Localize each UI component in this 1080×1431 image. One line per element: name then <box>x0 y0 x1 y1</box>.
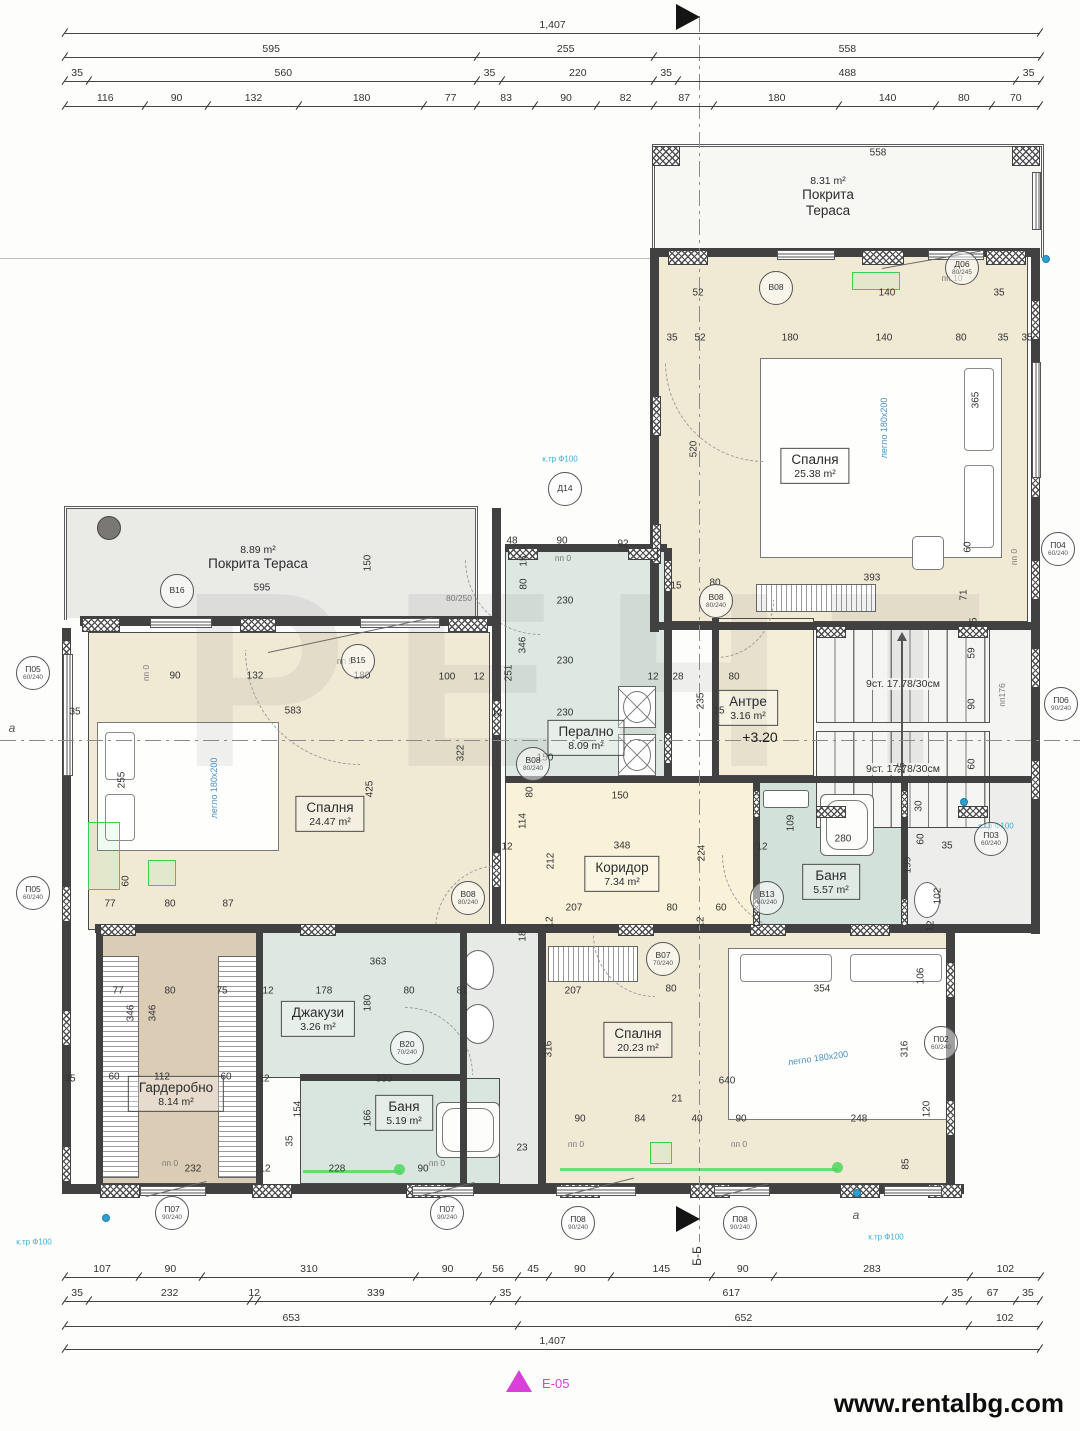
dimension-label: 100 <box>439 672 456 683</box>
dimension-value: 595 <box>262 43 280 55</box>
dimension-line <box>65 106 145 107</box>
room-label-bedroom-w: Спалня24.47 m² <box>295 796 364 832</box>
wall-hatch <box>668 250 708 265</box>
dimension-label: +3.20 <box>742 729 777 745</box>
dimension-line <box>89 81 477 82</box>
dimension-label: пп 0 <box>568 1139 584 1149</box>
dimension-label: 12 <box>696 916 707 927</box>
room-area: 7.34 m² <box>595 876 648 888</box>
callout-size: 80/245 <box>952 269 972 276</box>
dimension-line <box>654 106 714 107</box>
dimension-label: 90 <box>735 1114 746 1125</box>
dimension-label: 230 <box>557 708 574 719</box>
dimension-value: 283 <box>863 1263 881 1275</box>
dimension-line <box>493 1301 517 1302</box>
dimension-label: 199 <box>903 857 914 874</box>
wall <box>460 930 467 1184</box>
wall-hatch <box>753 790 760 818</box>
dimension-line <box>424 106 477 107</box>
dimension-value: 1,407 <box>539 1335 565 1347</box>
dimension-label: 90 <box>417 1164 428 1175</box>
callout-size: 80/240 <box>706 602 726 609</box>
callout-В07: В0770/240 <box>646 942 680 976</box>
dimension-line <box>839 106 936 107</box>
bathtub <box>820 794 874 856</box>
dimension-label: 280 <box>835 834 852 845</box>
dimension-value: 1,407 <box>539 19 565 31</box>
dimension-value: 220 <box>569 67 587 79</box>
nightstand <box>912 536 944 570</box>
dimension-value: 35 <box>951 1287 963 1299</box>
callout-id: Д06 <box>954 260 969 269</box>
dimension-label: 106 <box>916 968 927 985</box>
drain-marker <box>960 798 968 806</box>
dimension-label: 640 <box>719 1076 736 1087</box>
wall-hatch <box>618 924 654 936</box>
dimension-line <box>145 106 207 107</box>
room-area: 25.38 m² <box>791 468 838 480</box>
sheet-marker-triangle-icon <box>506 1370 532 1392</box>
dimension-label: 80/250 <box>446 593 472 603</box>
dimension-label: 154 <box>293 1101 304 1118</box>
dimension-label: 81 <box>456 986 467 997</box>
wall-hatch <box>492 852 501 888</box>
pipe-label: к.тр Ф100 <box>16 1238 52 1247</box>
dimension-label: 140 <box>876 333 893 344</box>
section-label: Б-Б <box>690 1246 704 1266</box>
dimension-value: 339 <box>367 1287 385 1299</box>
dimension-label: 150 <box>612 791 629 802</box>
wall <box>256 930 263 1184</box>
dimension-label: 80 <box>665 984 676 995</box>
drain-marker <box>853 1189 861 1197</box>
dimension-label: 228 <box>329 1164 346 1175</box>
dimension-line <box>714 106 839 107</box>
room-label-terrace-ne: 8.31 m²ПокритаТераса <box>802 175 854 219</box>
dimension-label: 583 <box>285 706 302 717</box>
dimension-line <box>1016 1301 1040 1302</box>
floor-plan: Е-05 www.rentalbg.com 8.31 m²ПокритаТера… <box>0 0 1080 1431</box>
dimension-label: пп 0 <box>141 665 151 681</box>
dimension-label: 166 <box>363 1110 374 1127</box>
dimension-line <box>518 1326 970 1327</box>
dimension-label: 230 <box>557 656 574 667</box>
dimension-value: 145 <box>653 1263 671 1275</box>
dimension-line <box>611 1277 711 1278</box>
dimension-label: 520 <box>689 441 700 458</box>
dimension-value: 488 <box>839 67 857 79</box>
callout-id: В16 <box>169 586 184 595</box>
bed-size-label: легло 180x200 <box>209 758 219 819</box>
callout-id: В08 <box>768 283 783 292</box>
guide-line <box>0 258 656 259</box>
dimension-label: 224 <box>697 845 708 862</box>
dimension-label: 393 <box>864 573 881 584</box>
dimension-label: 25 <box>969 617 980 628</box>
dimension-label: 354 <box>814 984 831 995</box>
dimension-label: 207 <box>566 903 583 914</box>
dimension-value: 140 <box>879 92 897 104</box>
callout-В08: В0880/240 <box>699 584 733 618</box>
dimension-value: 35 <box>71 67 83 79</box>
dimension-value: 56 <box>492 1263 504 1275</box>
dimension-value: 35 <box>484 67 496 79</box>
dimension-label: 15 <box>713 706 724 717</box>
dimension-line <box>299 106 424 107</box>
dimension-line <box>992 106 1041 107</box>
dimension-label: 112 <box>154 1072 170 1083</box>
callout-Д06: Д0680/245 <box>945 251 979 285</box>
dimension-label: 35 <box>64 1074 75 1085</box>
dimension-label: 12 <box>258 1074 269 1085</box>
dimension-label: 12 <box>473 672 484 683</box>
wall-hatch <box>448 618 488 632</box>
dimension-label: 40 <box>691 1114 702 1125</box>
room-name: Спалня <box>614 1026 661 1042</box>
dimension-line <box>65 57 477 58</box>
dimension-label: 12 <box>491 708 502 719</box>
callout-id: В20 <box>399 1040 414 1049</box>
dimension-value: 102 <box>996 1312 1014 1324</box>
dimension-line <box>549 1277 611 1278</box>
callout-size: 70/240 <box>397 1049 417 1056</box>
wall-hatch <box>240 618 276 632</box>
dimension-value: 35 <box>660 67 672 79</box>
dimension-value: 77 <box>445 92 457 104</box>
dimension-line <box>502 81 654 82</box>
callout-size: 60/240 <box>23 894 43 901</box>
dimension-label: 339 <box>376 1074 393 1085</box>
dimension-label: 316 <box>900 1041 911 1058</box>
wall-hatch <box>664 732 672 764</box>
callout-П04: П0460/240 <box>1041 532 1075 566</box>
bathroom-sink <box>763 790 809 808</box>
dimension-value: 310 <box>300 1263 318 1275</box>
dimension-label: 60 <box>963 541 974 552</box>
dimension-label: 322 <box>456 745 467 762</box>
dimension-label: 30 <box>914 800 925 811</box>
room-name: Коридор <box>595 860 648 876</box>
dimension-label: 35 <box>1021 333 1032 344</box>
dimension-value: 82 <box>620 92 632 104</box>
callout-В20: В2070/240 <box>390 1031 424 1065</box>
callout-В16: В16 <box>160 574 194 608</box>
website-watermark: www.rentalbg.com <box>834 1388 1064 1419</box>
dimension-label: 316 <box>544 1041 555 1058</box>
dimension-tick <box>1037 1344 1044 1353</box>
dimension-value: 180 <box>768 92 786 104</box>
room-label-antre: Антре3.16 m² <box>718 690 778 726</box>
callout-id: В08 <box>708 593 723 602</box>
dimension-line <box>535 106 597 107</box>
dimension-label: 140 <box>879 288 896 299</box>
wall-hatch <box>1031 560 1040 600</box>
dimension-label: 28 <box>672 672 683 683</box>
callout-П08: П0890/240 <box>561 1206 595 1240</box>
dimension-label: 92 <box>617 539 628 550</box>
dimension-value: 116 <box>97 92 114 104</box>
room-label-jacuzzi: Джакузи3.26 m² <box>281 1001 355 1037</box>
dimension-label: пп 0 <box>162 1158 178 1168</box>
dimension-label: 348 <box>614 841 631 852</box>
dimension-line <box>477 57 654 58</box>
callout-id: П03 <box>983 831 999 840</box>
radiator <box>148 860 176 886</box>
dimension-label: 75 <box>216 986 227 997</box>
bed-pillow <box>964 465 994 548</box>
room-name: Покрита <box>802 187 854 203</box>
room-area: 3.16 m² <box>729 710 767 722</box>
wall-hatch <box>652 396 661 436</box>
dimension-label: 77 <box>104 899 115 910</box>
stair-landing <box>816 722 990 732</box>
dimension-line <box>1016 81 1040 82</box>
callout-П02: П0260/240 <box>924 1026 958 1060</box>
dimension-label: 132 <box>247 671 264 682</box>
window <box>1032 172 1041 230</box>
callout-size: 60/240 <box>931 1044 951 1051</box>
dimension-value: 35 <box>500 1287 512 1299</box>
dimension-label: 80 <box>728 672 739 683</box>
callout-П06: П0690/240 <box>1044 687 1078 721</box>
dimension-label: 80 <box>666 903 677 914</box>
callout-П05: П0560/240 <box>16 656 50 690</box>
dimension-label: 207 <box>565 986 582 997</box>
dimension-label: 90 <box>967 698 978 709</box>
dimension-value: 80 <box>958 92 970 104</box>
wall-hatch <box>1012 146 1040 166</box>
wall-hatch <box>82 618 120 632</box>
callout-size: 90/240 <box>568 1224 588 1231</box>
wall <box>96 930 103 1184</box>
pipe-label: к.тр Ф100 <box>542 455 578 464</box>
wall-hatch <box>100 1184 140 1198</box>
dimension-label: 60 <box>121 875 132 886</box>
dimension-line <box>518 1301 946 1302</box>
radiator <box>88 822 120 890</box>
callout-id: В15 <box>350 656 365 665</box>
dimension-value: 45 <box>527 1263 539 1275</box>
dimension-label: 248 <box>851 1114 868 1125</box>
dimension-line <box>65 81 89 82</box>
dimension-label: 109 <box>786 815 797 832</box>
bed-pillow <box>964 368 994 451</box>
wall <box>946 924 1040 933</box>
dimension-value: 132 <box>245 92 263 104</box>
dimension-value: 70 <box>1010 92 1022 104</box>
dimension-tick <box>1037 28 1044 37</box>
dimension-value: 90 <box>737 1263 749 1275</box>
wall-hatch <box>958 806 988 818</box>
dimension-label: 80 <box>164 899 175 910</box>
dimension-label: 80 <box>403 986 414 997</box>
wall-hatch <box>862 250 904 265</box>
callout-id: В08 <box>525 756 540 765</box>
room-label-terrace-w: 8.89 m²Пок­рита Тераса <box>208 544 308 572</box>
dimension-line <box>202 1277 417 1278</box>
dimension-tick <box>1037 1296 1044 1305</box>
wall-hatch <box>901 790 908 818</box>
dimension-label: 120 <box>922 1101 933 1118</box>
dimension-label: 178 <box>316 986 333 997</box>
dimension-value: 232 <box>161 1287 179 1299</box>
sheet-label: Е-05 <box>542 1376 569 1391</box>
callout-size: 70/240 <box>653 960 673 967</box>
room-label-bath-e: Баня5.57 m² <box>802 864 860 900</box>
dimension-label: 346 <box>148 1005 159 1022</box>
dimension-line <box>970 1277 1041 1278</box>
dimension-label: 59 <box>967 647 978 658</box>
room-area: 5.19 m² <box>386 1115 422 1127</box>
callout-size: 90/240 <box>730 1224 750 1231</box>
dimension-value: 90 <box>164 1263 176 1275</box>
room-name: Пок­рита Тераса <box>208 556 308 572</box>
dimension-line <box>518 1277 549 1278</box>
dimension-value: 102 <box>997 1263 1015 1275</box>
wall-hatch <box>816 806 846 818</box>
bed-pillow <box>850 954 942 982</box>
dimension-label: 363 <box>370 957 387 968</box>
callout-id: В07 <box>655 951 670 960</box>
room-name: Гардеробно <box>139 1080 213 1096</box>
dimension-label: 558 <box>870 148 887 159</box>
dimension-value: 35 <box>71 1287 83 1299</box>
dimension-value: 67 <box>987 1287 999 1299</box>
dimension-line <box>969 1301 1015 1302</box>
dimension-label: 35 <box>941 841 952 852</box>
room-label-bedroom-s: Спалня20.23 m² <box>603 1022 672 1058</box>
dimension-label: 60 <box>220 1072 231 1083</box>
dimension-label: 52 <box>694 333 705 344</box>
callout-В13: В1380/240 <box>750 881 784 915</box>
dimension-value: 90 <box>442 1263 454 1275</box>
dimension-label: 85 <box>901 1158 912 1169</box>
green-marker <box>394 1164 405 1175</box>
dimension-line <box>477 81 501 82</box>
callout-id: П07 <box>164 1205 180 1214</box>
dimension-label: пп 0 <box>429 1158 445 1168</box>
dimension-label: пп 0 <box>555 553 571 563</box>
dimension-line <box>712 1277 774 1278</box>
wall-hatch <box>62 1146 71 1182</box>
callout-size: 90/240 <box>162 1214 182 1221</box>
dimension-label: 21 <box>671 1094 682 1105</box>
room-area: 3.26 m² <box>292 1021 344 1033</box>
wall-hatch <box>100 924 136 936</box>
dimension-label: 80 <box>164 986 175 997</box>
room-name: Джакузи <box>292 1005 344 1021</box>
room-area: 8.31 m² <box>802 175 854 187</box>
dimension-value: 255 <box>557 43 575 55</box>
dimension-label: 425 <box>365 781 376 798</box>
dimension-label: 232 <box>185 1164 202 1175</box>
dimension-label: пп 0 <box>1009 549 1019 565</box>
wall-hatch <box>1031 648 1040 688</box>
dimension-label: 87 <box>222 899 233 910</box>
dimension-line <box>65 33 1040 34</box>
dimension-label: 235 <box>696 693 707 710</box>
window <box>884 1186 942 1196</box>
dimension-label: 12 <box>647 672 658 683</box>
dimension-label: 230 <box>557 596 574 607</box>
dimension-label: а <box>853 1208 860 1222</box>
dimension-line <box>654 81 678 82</box>
dimension-label: 12 <box>926 920 937 931</box>
wall-hatch <box>850 924 890 936</box>
dimension-label: 18 <box>518 930 529 941</box>
room-name: Спалня <box>306 800 353 816</box>
dimension-label: 60 <box>967 758 978 769</box>
dimension-label: 150 <box>363 555 374 572</box>
dimension-label: 80 <box>955 333 966 344</box>
dimension-tick <box>1037 101 1044 110</box>
dimension-label: 114 <box>518 813 529 829</box>
bed-size-label: легло 180x200 <box>879 398 889 459</box>
callout-size: 90/240 <box>437 1214 457 1221</box>
dimension-label: 12 <box>262 986 273 997</box>
dimension-value: 90 <box>574 1263 586 1275</box>
room-label-bath-s: Баня5.19 m² <box>375 1095 433 1131</box>
callout-id: Д14 <box>557 484 572 493</box>
dimension-value: 653 <box>282 1312 300 1324</box>
dimension-line <box>65 1277 139 1278</box>
callout-П07: П0790/240 <box>155 1196 189 1230</box>
dimension-label: 60 <box>715 903 726 914</box>
dimension-value: 180 <box>353 92 371 104</box>
wall-hatch <box>946 1100 955 1136</box>
dimension-value: 83 <box>500 92 512 104</box>
callout-id: П06 <box>1053 696 1069 705</box>
dimension-label: 77 <box>112 986 123 997</box>
callout-П05: П0560/240 <box>16 876 50 910</box>
dimension-line <box>774 1277 970 1278</box>
callout-id: П05 <box>25 885 41 894</box>
room-area: 8.09 m² <box>558 740 613 752</box>
window <box>1032 362 1041 478</box>
dimension-label: 80 <box>525 786 536 797</box>
dimension-label: 52 <box>692 288 703 299</box>
dimension-line <box>258 1301 493 1302</box>
wall-hatch <box>300 924 336 936</box>
dimension-label: 80 <box>519 578 530 589</box>
dimension-label: 212 <box>546 853 557 870</box>
pipe-label: к.тр Ф100 <box>868 1233 904 1242</box>
room-name: Спалня <box>791 452 838 468</box>
dimension-label: 12 <box>756 842 767 853</box>
wall-hatch <box>62 1010 71 1046</box>
dimension-line <box>479 1277 518 1278</box>
wall <box>650 248 659 632</box>
room-area: 5.57 m² <box>813 884 849 896</box>
wall-hatch <box>252 1184 292 1198</box>
dimension-label: 48 <box>506 536 517 547</box>
dimension-label: пп 0 <box>731 1139 747 1149</box>
dimension-line <box>969 1326 1040 1327</box>
callout-size: 60/240 <box>1048 550 1068 557</box>
dimension-label: 15 <box>670 581 681 592</box>
room-label-laundry: Перално8.09 m² <box>547 720 624 756</box>
callout-П03: П0360/240 <box>974 822 1008 856</box>
dimension-label: 15 <box>519 555 530 566</box>
dimension-label: 35 <box>666 333 677 344</box>
callout-П08: П0890/240 <box>723 1206 757 1240</box>
room-name: Баня <box>386 1099 422 1115</box>
axis-line-a <box>0 740 1080 741</box>
dimension-line <box>936 106 991 107</box>
wall-hatch <box>1031 760 1040 800</box>
dimension-value: 560 <box>275 67 293 79</box>
dimension-label: 90 <box>169 671 180 682</box>
